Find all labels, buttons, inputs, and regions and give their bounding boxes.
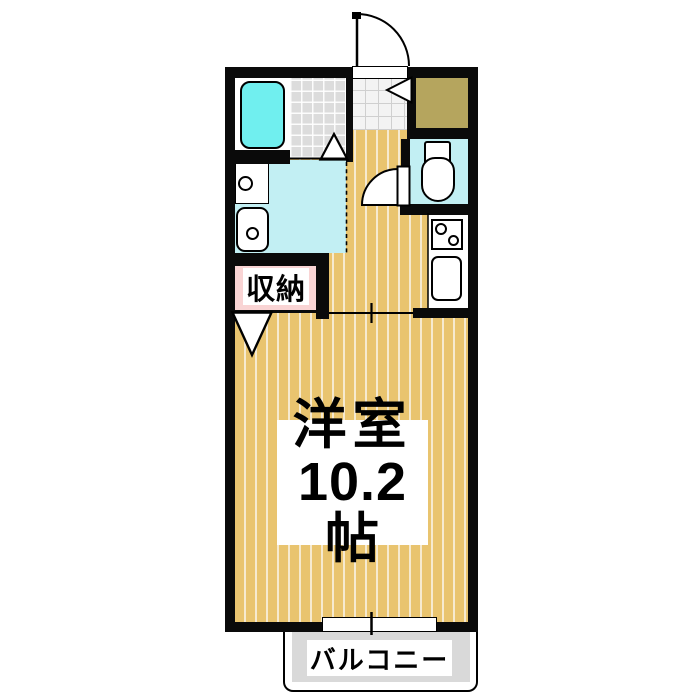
wall-bottom-right xyxy=(436,622,478,632)
vanity-bowl-icon xyxy=(238,176,253,191)
kitchen-sink-icon xyxy=(431,256,462,301)
entry-tile-floor xyxy=(352,77,407,130)
wall-toilet-bottom xyxy=(400,204,468,215)
wall-kitchen-bottom xyxy=(413,308,468,318)
wall-top-left xyxy=(225,67,353,78)
toilet-icon xyxy=(421,157,455,202)
main-room-size: 10.2帖 xyxy=(277,454,428,568)
bathtub-icon xyxy=(240,81,285,149)
bath-tile-floor xyxy=(290,77,346,158)
closet-label: 収納 xyxy=(243,268,309,305)
stove-burner-1 xyxy=(435,223,447,235)
wall-toilet-left xyxy=(401,139,410,169)
floor-plan-page: { "labels": { "main_room_name": "洋室", "m… xyxy=(0,0,700,700)
wall-closet-right xyxy=(316,253,329,319)
wall-right xyxy=(468,67,478,632)
wall-washroom-bottom xyxy=(225,253,320,266)
wall-bath-right xyxy=(346,67,353,162)
wall-entry-right xyxy=(407,77,416,132)
stove-burner-2 xyxy=(448,235,459,246)
stove-burners-icon xyxy=(431,219,463,250)
wall-bottom-left xyxy=(225,622,323,632)
entrance-door-opening xyxy=(352,66,408,79)
balcony-label: バルコニー xyxy=(307,640,452,676)
washing-machine-drum-icon xyxy=(246,227,259,240)
sliding-window-icon xyxy=(322,617,437,632)
main-room-name: 洋室 xyxy=(293,397,413,454)
closet-bottom-line xyxy=(235,310,316,313)
main-room-label: 洋室 10.2帖 xyxy=(277,420,428,545)
wall-bath-bottom xyxy=(225,150,290,164)
wall-toilet-top xyxy=(407,128,468,139)
entry-step-floor xyxy=(415,77,468,128)
entrance-door-swing-icon xyxy=(352,12,409,66)
